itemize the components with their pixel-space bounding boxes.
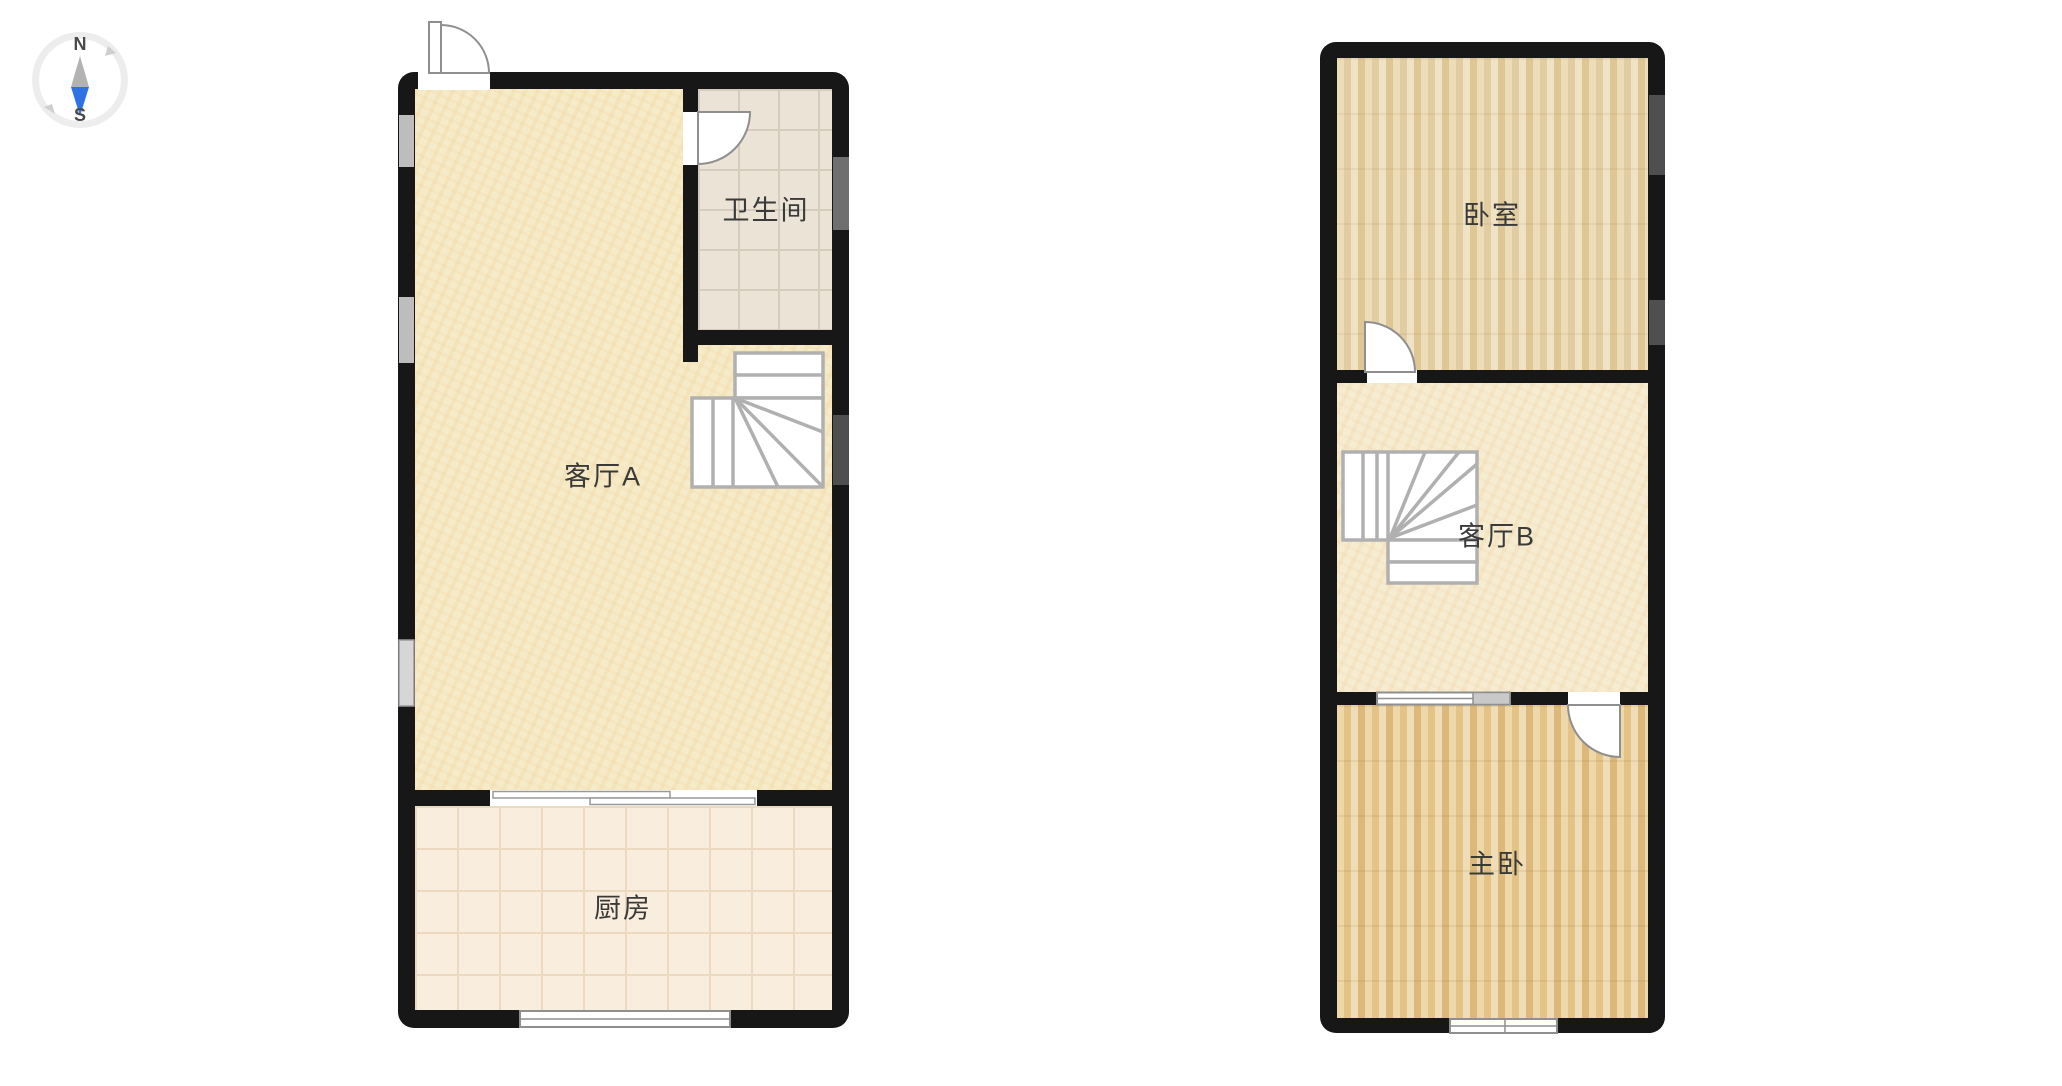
label-kitchen: 厨房 bbox=[594, 887, 652, 926]
compass: N S bbox=[32, 32, 128, 128]
compass-south-label: S bbox=[74, 105, 86, 126]
label-bedroom: 卧室 bbox=[1463, 194, 1521, 233]
label-living-a: 客厅A bbox=[564, 455, 642, 494]
bathroom-wall-bottom bbox=[683, 330, 849, 345]
bathroom-wall-left bbox=[683, 89, 698, 362]
label-master-bedroom: 主卧 bbox=[1468, 843, 1526, 882]
label-living-b: 客厅B bbox=[1458, 515, 1536, 554]
label-bathroom: 卫生间 bbox=[723, 189, 810, 228]
compass-north-label: N bbox=[74, 34, 87, 55]
floorplan-canvas: N S bbox=[0, 0, 2062, 1086]
plan-symbols-overlay bbox=[0, 0, 2062, 1086]
